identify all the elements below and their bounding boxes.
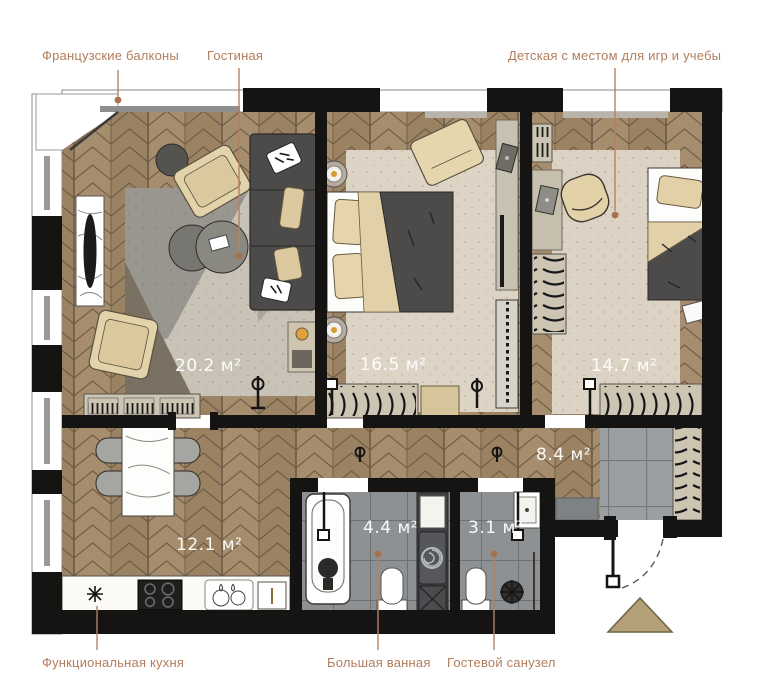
kids-desk bbox=[532, 170, 562, 250]
kitchen-sink bbox=[205, 580, 253, 610]
vase bbox=[84, 214, 97, 288]
coffee-tables bbox=[169, 221, 248, 273]
storage-box bbox=[419, 586, 446, 612]
bedroom-bench bbox=[421, 386, 459, 417]
area-label-kids: 14.7 м² bbox=[591, 356, 657, 376]
double-bed bbox=[327, 192, 453, 312]
living-bookshelf bbox=[84, 394, 200, 418]
entrance-marker bbox=[608, 598, 672, 632]
cutting-board bbox=[258, 582, 286, 609]
marble-console bbox=[76, 196, 104, 306]
pendant-light-icon bbox=[87, 586, 103, 602]
floor-plan-svg: 20.2 м² 16.5 м² 14.7 м² 8.4 м² 12.1 м² 4… bbox=[0, 0, 781, 700]
tub-drain bbox=[318, 558, 338, 578]
tv-console bbox=[496, 120, 518, 290]
sofa bbox=[250, 134, 316, 310]
bathtub bbox=[306, 494, 350, 604]
bath-sink bbox=[420, 496, 445, 528]
kids-wardrobe-bottom bbox=[600, 384, 702, 418]
tv bbox=[500, 215, 504, 287]
lamp-side-table bbox=[288, 322, 316, 372]
callout-living-room: Гостиная bbox=[207, 48, 263, 63]
area-label-kitchen: 12.1 м² bbox=[176, 535, 242, 555]
kids-wardrobe-left bbox=[532, 254, 566, 334]
stove bbox=[138, 580, 182, 610]
area-label-bath: 4.4 м² bbox=[363, 518, 418, 538]
kitchen-counter bbox=[62, 576, 290, 612]
wc-toilet bbox=[462, 568, 490, 612]
kids-bookshelf bbox=[532, 124, 552, 162]
door-swing-arc bbox=[622, 539, 663, 588]
washer-column bbox=[417, 492, 448, 612]
entry-door bbox=[607, 537, 663, 588]
washing-machine bbox=[419, 532, 446, 584]
entry-wardrobe bbox=[673, 425, 702, 520]
area-label-hall: 8.4 м² bbox=[536, 445, 591, 465]
callout-kids-room: Детская с местом для игр и учебы bbox=[508, 48, 721, 63]
area-label-bedroom: 16.5 м² bbox=[360, 355, 426, 375]
table-lamp-icon bbox=[296, 328, 308, 340]
area-label-wc: 3.1 м² bbox=[468, 518, 523, 538]
keyboard-shelf bbox=[496, 300, 518, 408]
area-label-living: 20.2 м² bbox=[175, 356, 241, 376]
dining-table bbox=[122, 424, 174, 516]
floor-plan-page: 20.2 м² 16.5 м² 14.7 м² 8.4 м² 12.1 м² 4… bbox=[0, 0, 781, 700]
callout-french-balconies: Французские балконы bbox=[42, 48, 179, 63]
callout-kitchen: Функциональная кухня bbox=[42, 655, 184, 670]
entry-mat bbox=[556, 498, 598, 520]
callout-guest-wc: Гостевой санузел bbox=[447, 655, 556, 670]
entry-tile-floor bbox=[600, 425, 673, 520]
bath-toilet bbox=[377, 568, 407, 612]
armchair-left bbox=[88, 309, 159, 380]
callout-bathroom: Большая ванная bbox=[327, 655, 431, 670]
